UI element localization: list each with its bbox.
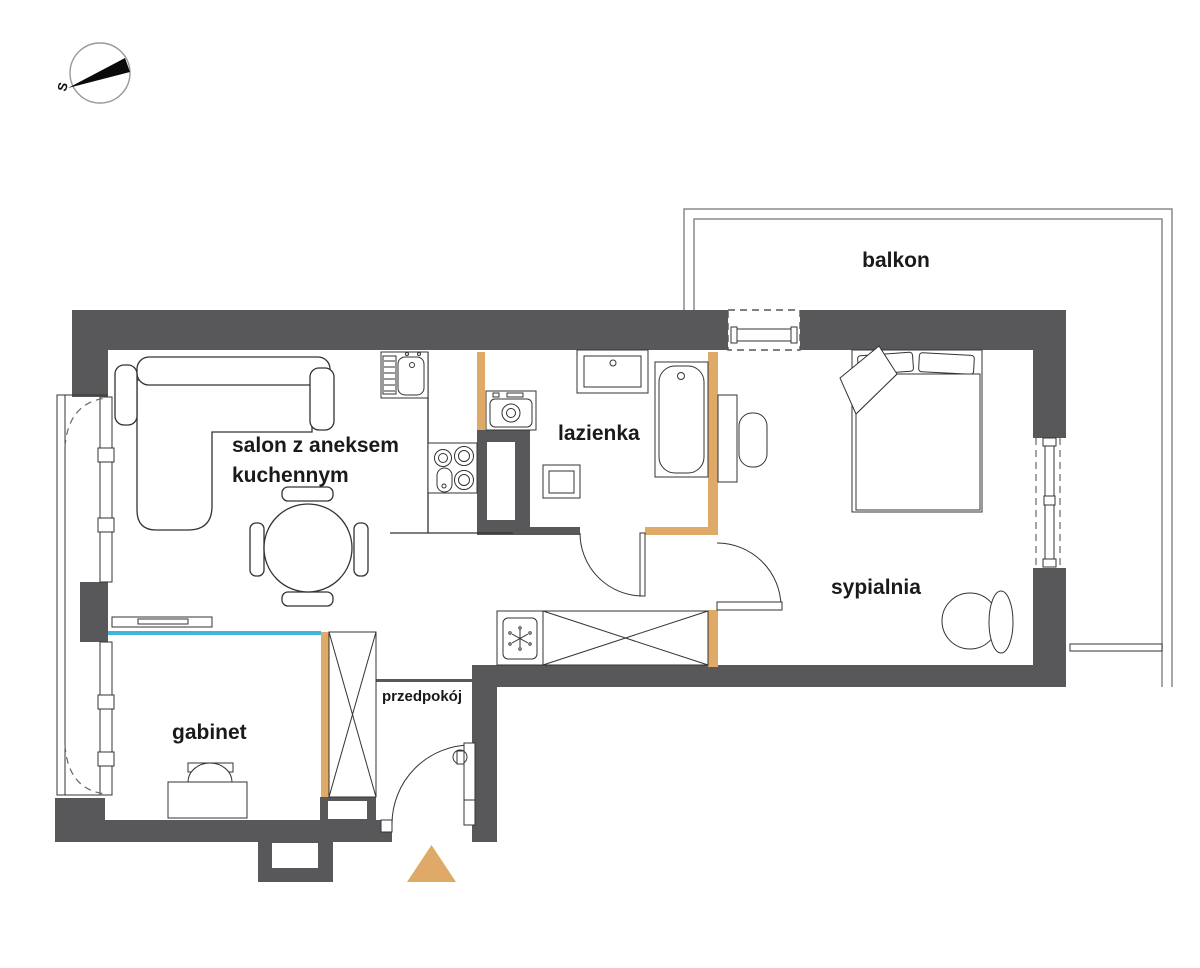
room-label-salon-line2: kuchennym (232, 464, 349, 487)
compass-icon: S (54, 43, 130, 103)
door-jamb (381, 820, 392, 832)
washbasin (577, 350, 648, 393)
wall-niche (328, 801, 367, 819)
toilet (543, 465, 580, 498)
compass-label: S (54, 80, 71, 93)
hall-threshold-line (376, 679, 472, 682)
wall-left-corner (72, 310, 108, 397)
wall-top-left (72, 310, 728, 350)
bedroom-desk (718, 395, 767, 482)
hallway (381, 611, 708, 832)
door-leaf (640, 533, 645, 596)
stud-strip-gabinet-wardrobe (321, 632, 329, 797)
chair-left (250, 523, 264, 576)
floor-plan-canvas: S balkon (0, 0, 1200, 968)
ventilation-shaft-core (487, 442, 515, 520)
dining-table (250, 487, 368, 606)
window-sash-upper (100, 397, 112, 582)
stud-wall-bath-south (645, 527, 718, 535)
sofa-armrest-left (115, 365, 137, 425)
bedroom-door (717, 543, 782, 610)
window-sash-lower (100, 642, 112, 795)
floor-plan: S balkon (0, 0, 1200, 968)
tv-sideboard (112, 617, 212, 627)
armchair (942, 591, 1013, 653)
wall-entry-column (472, 665, 497, 842)
wall-left-pillar (80, 582, 108, 642)
pillow-right (919, 353, 975, 375)
fridge (497, 611, 543, 665)
door-swing-arc (580, 533, 643, 596)
chair-top (282, 487, 333, 501)
window-top-bedroom (728, 310, 800, 350)
desk-top (168, 782, 247, 818)
desk-chair (739, 413, 767, 467)
sofa-armrest-right (310, 368, 334, 430)
wall-left-bottom-corner (55, 798, 105, 842)
room-label-lazienka: lazienka (558, 422, 640, 445)
wall-top-right (800, 310, 1066, 350)
wall-right-upper (1033, 310, 1066, 438)
room-label-przedpokoj: przedpokój (382, 688, 462, 705)
wall-bath-south-left (528, 527, 580, 535)
door-leaf (717, 602, 782, 610)
stud-wall-bedroom-stub (708, 610, 718, 667)
cooktop (428, 443, 477, 493)
balcony-edge-bar (1070, 644, 1162, 651)
north-arrow-icon (68, 58, 130, 88)
room-label-salon-line1: salon z aneksem (232, 434, 399, 457)
gabinet-wardrobe (329, 632, 376, 797)
desk-top (718, 395, 737, 482)
hall-wardrobe (543, 611, 708, 665)
bed (840, 346, 982, 512)
stud-wall-bath-east (708, 352, 718, 533)
window-right-bedroom (1036, 438, 1060, 568)
bathtub (655, 362, 708, 477)
chair-right (354, 523, 368, 576)
room-label-sypialnia: sypialnia (831, 576, 921, 599)
kitchen-sink (381, 352, 428, 398)
entrance-marker-icon (407, 845, 456, 882)
door-swing-arc (717, 543, 781, 606)
wall-chimney-niche (272, 843, 318, 868)
bathroom-door (580, 533, 645, 596)
stud-wall-kitchen-bath (477, 352, 485, 430)
washing-machine (486, 391, 536, 430)
chair-bottom (282, 592, 333, 606)
table-top (264, 504, 352, 592)
wall-right-lower (1033, 568, 1066, 687)
bedroom (717, 346, 1013, 653)
wall-south-band (472, 665, 1066, 687)
office-desk (168, 763, 247, 818)
entrance-door (381, 743, 475, 832)
wall-bottom (105, 820, 392, 842)
room-label-gabinet: gabinet (172, 721, 247, 744)
glass-partition (108, 631, 321, 635)
sofa-backrest (137, 357, 330, 385)
room-label-balkon: balkon (862, 249, 930, 272)
